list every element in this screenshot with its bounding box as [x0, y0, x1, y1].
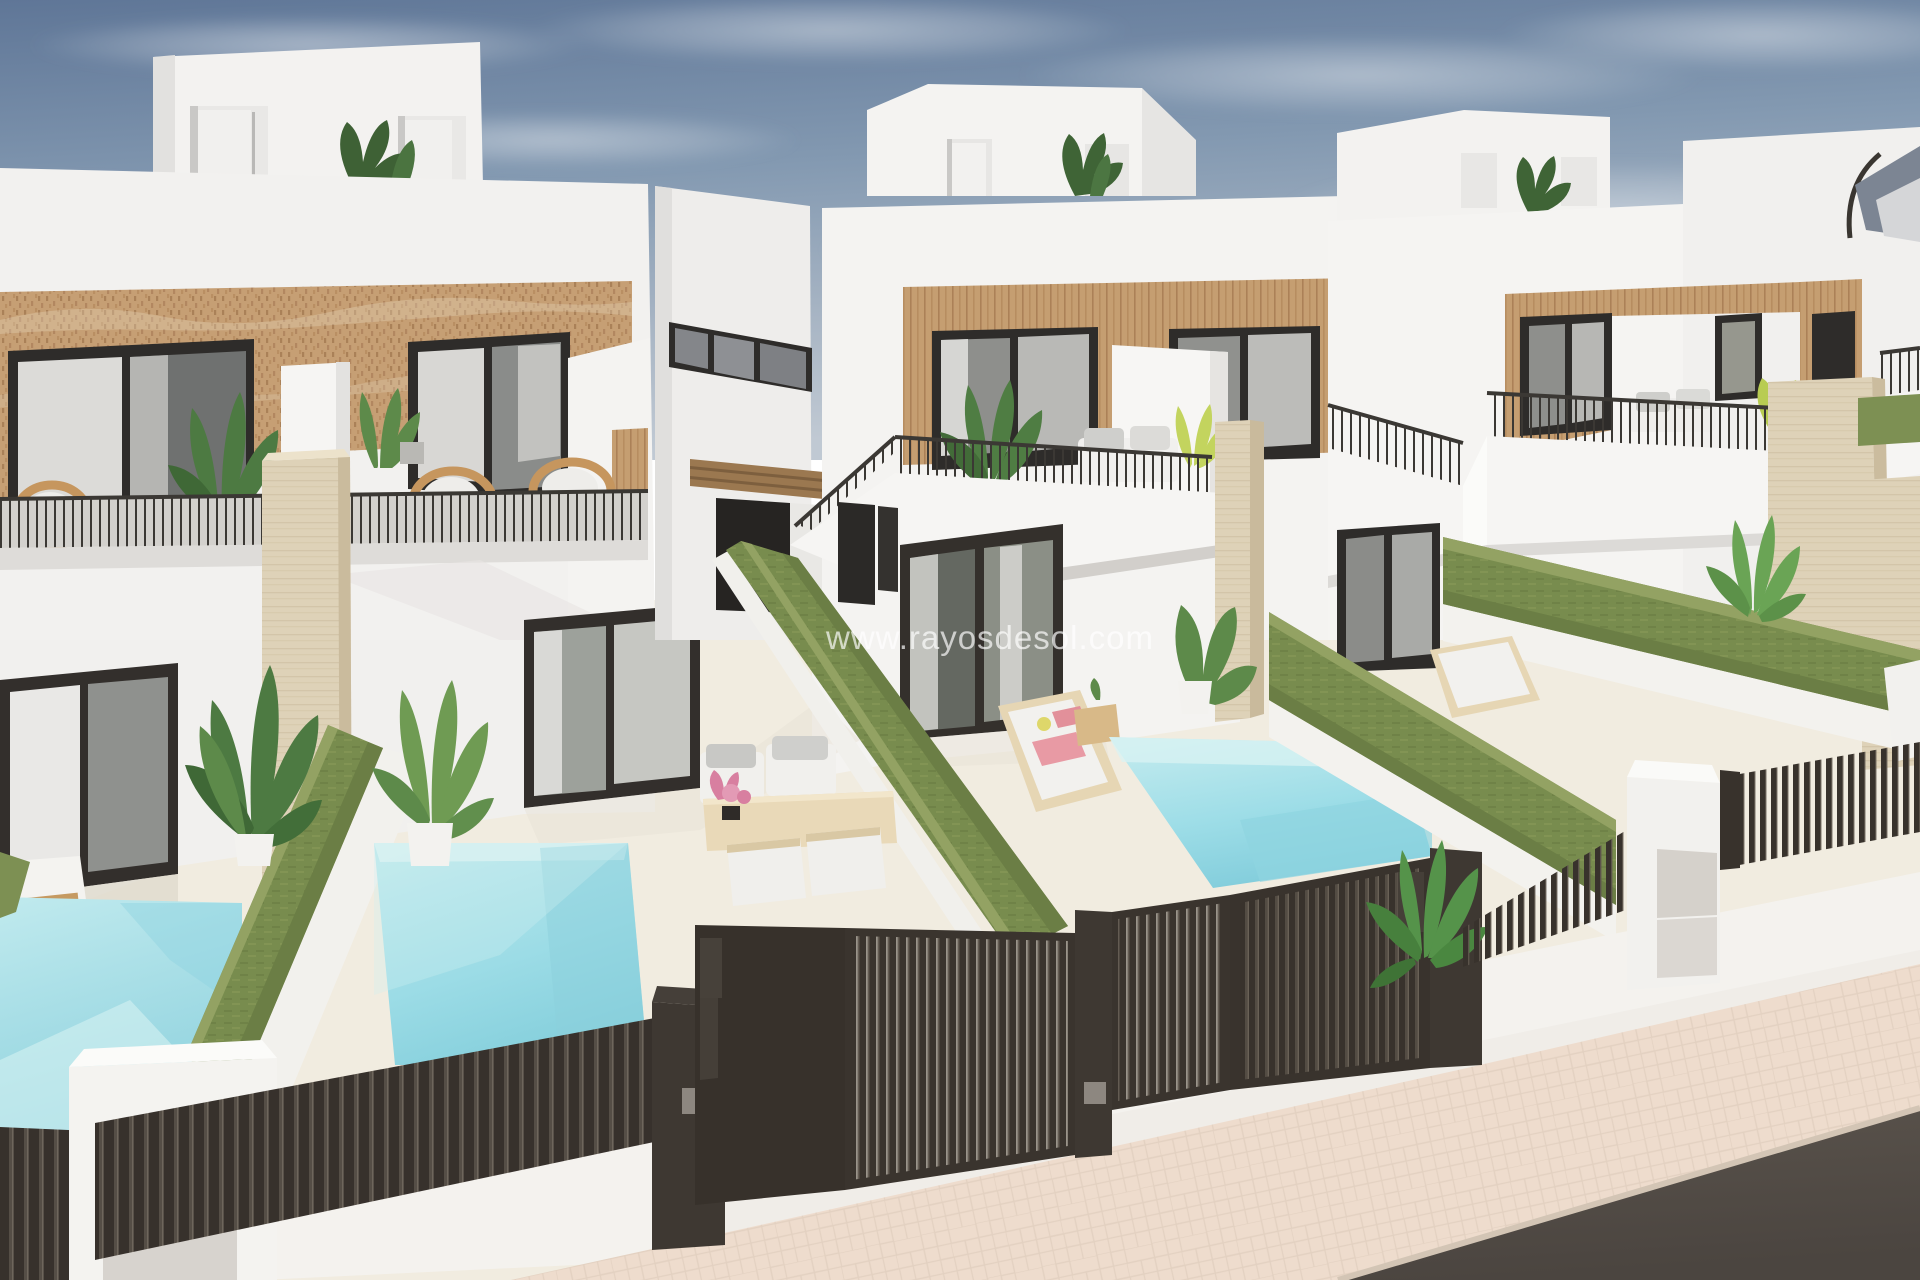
svg-text:www.rayosdesol.com: www.rayosdesol.com — [825, 619, 1154, 656]
